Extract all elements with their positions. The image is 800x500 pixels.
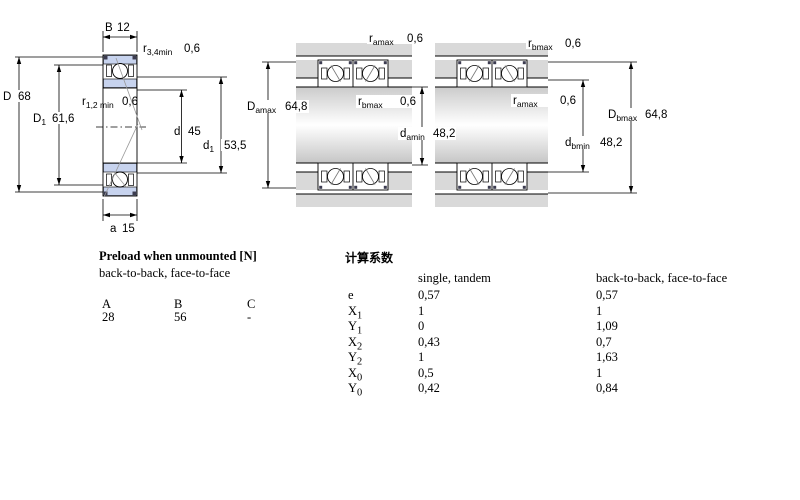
dim-Dbmax	[548, 62, 637, 193]
label-a: a15	[110, 223, 135, 235]
bearing-cage	[107, 65, 112, 77]
factors-col1-header: single, tandem	[418, 271, 491, 286]
label-r12: r1,2 min0,6	[82, 96, 138, 110]
label-B: B12	[105, 22, 130, 34]
factors-title: 计算系数	[345, 249, 393, 266]
label-d: d45	[174, 126, 201, 138]
factors-row: X1 1 1	[345, 304, 785, 320]
label-d1: d153,5	[203, 140, 246, 154]
bearing-cage	[107, 174, 112, 186]
dim-D1	[54, 65, 103, 185]
bearing-cage	[129, 174, 134, 186]
inner-ring	[103, 79, 136, 88]
bearing-seal	[133, 56, 137, 60]
dim-a	[103, 199, 137, 221]
preload-value-a: 28	[102, 310, 115, 325]
preload-value-c: -	[247, 310, 251, 325]
preload-title: Preload when unmounted [N]	[99, 249, 257, 264]
factors-row: Y2 1 1,63	[345, 350, 785, 366]
outer-ring	[103, 55, 136, 64]
bearing-seal	[133, 192, 137, 196]
factors-row: e 0,57 0,57	[345, 288, 785, 304]
factors-row: X2 0,43 0,7	[345, 335, 785, 351]
factors-col2-header: back-to-back, face-to-face	[596, 271, 727, 286]
inner-ring	[103, 163, 136, 172]
preload-value-b: 56	[174, 310, 187, 325]
middle-arrangement-drawing	[296, 43, 412, 207]
dim-Damax	[262, 62, 296, 188]
dim-dbmin	[548, 80, 589, 172]
left-bearing-cross-section	[96, 55, 146, 197]
bearing-cage	[129, 65, 134, 77]
factors-row: Y0 0,42 0,84	[345, 381, 785, 397]
right-arrangement-drawing	[435, 43, 548, 207]
label-r34: r3,4min0,6	[143, 43, 200, 57]
bearing-ball	[113, 64, 128, 79]
dim-B	[103, 31, 137, 52]
factors-row: X0 0,5 1	[345, 366, 785, 382]
label-D1: D161,6	[33, 113, 74, 127]
bearing-datasheet-page: B12 r3,4min0,6 D68 D161,6 r1,2 min0,6 d4…	[0, 0, 800, 500]
bearing-seal	[104, 56, 108, 60]
bearing-drawings: B12 r3,4min0,6 D68 D161,6 r1,2 min0,6 d4…	[0, 0, 800, 245]
preload-subtitle: back-to-back, face-to-face	[99, 266, 230, 281]
factors-row: Y1 0 1,09	[345, 319, 785, 335]
